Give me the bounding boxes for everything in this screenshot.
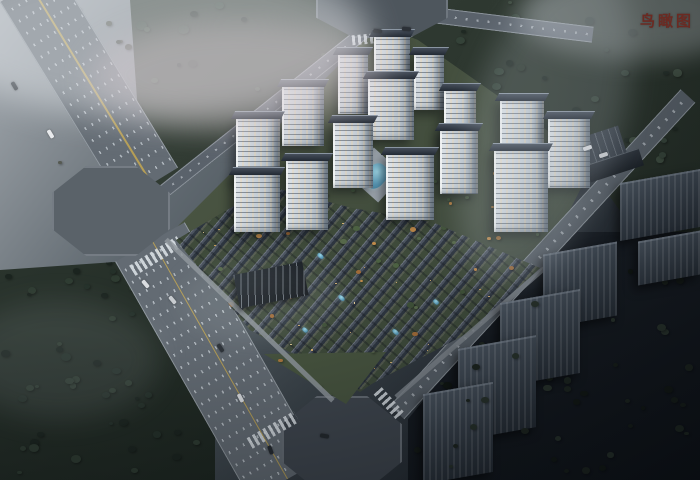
view-title-label: 鸟瞰图: [640, 10, 694, 31]
car: [237, 393, 245, 403]
car: [267, 445, 274, 455]
cars-layer: [0, 0, 700, 480]
car: [402, 27, 411, 32]
car: [320, 433, 330, 439]
car: [583, 145, 593, 152]
car: [141, 279, 150, 288]
car: [46, 129, 54, 139]
car: [10, 81, 18, 91]
car: [168, 295, 177, 304]
aerial-rendering: 鸟瞰图: [0, 0, 700, 480]
car: [373, 29, 382, 34]
car: [216, 343, 224, 353]
car: [599, 152, 609, 159]
